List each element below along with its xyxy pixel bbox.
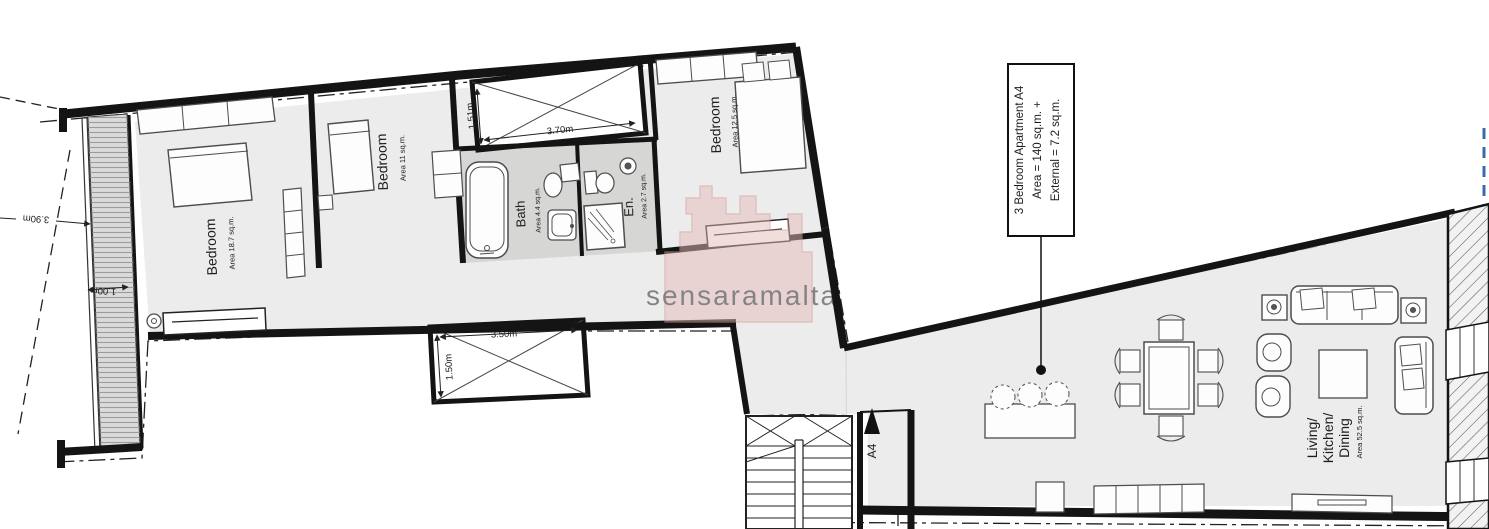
dresser-symbol-b2 [432,150,463,198]
bedroom3-name: Bedroom [706,96,724,153]
breakfast-bar-symbol [985,382,1075,438]
bedroom1-window [163,308,266,335]
dim-courtyard-width: 3.50m [491,328,518,340]
living-name-1: Living/ [1304,418,1320,459]
armchair-symbol-1 [1257,334,1291,371]
bedroom1-name: Bedroom [202,218,220,275]
floor-drain-symbol [147,314,161,328]
living-name-2: Kitchen/ [1320,413,1336,464]
dresser-symbol-b1 [283,188,305,278]
leader-dot [1036,365,1046,375]
floor-plan-canvas: sensaramalta 3 Bedroom Apartment A4 Area… [0,0,1489,529]
right-exterior-wall [1446,204,1489,529]
living-window-2 [1446,458,1489,504]
bedroom3-area: Area 12.5 sq.m. [729,94,740,147]
living-window-1 [1446,322,1489,380]
armchair-symbol-2 [1256,376,1290,417]
floor-plan-page: sensaramalta 3 Bedroom Apartment A4 Area… [0,0,1489,529]
shower-symbol [584,203,625,250]
sofa-top-symbol [1291,286,1398,324]
dim-terrace-width: 1.00m [89,284,116,296]
staircase [746,416,852,529]
coffee-table-symbol [1319,350,1367,398]
extractor-symbol [620,158,636,174]
bedroom2-area: Area 11 sq.m. [397,135,408,181]
side-table-lamp-left [1262,295,1287,320]
title-line-2: Area = 140 sq.m. + [1032,101,1044,199]
bed-symbol-b1 [168,143,252,207]
dim-courtyard-depth: 1.50m [443,353,455,380]
bedroom2-name: Bedroom [373,133,391,190]
title-line-1: 3 Bedroom Apartment A4 [1014,85,1026,214]
sofa-right-symbol [1395,337,1433,414]
side-table-lamp-right [1401,298,1426,323]
bedroom1-area: Area 18.7 sq.m. [226,216,237,269]
living-name-3: Dining [1336,418,1352,458]
living-area: Area 52.5 sq.m. [1355,406,1364,459]
ensuite-name: En. [621,197,637,217]
entrance-label: A4 [865,443,879,458]
bathtub-symbol [466,162,508,258]
bed-symbol-b3 [735,60,806,173]
watermark-text: sensaramalta [646,280,838,311]
bath-sink-symbol [548,210,576,240]
title-line-3: External = 7.2 sq.m. [1050,99,1062,202]
bath-name: Bath [513,200,529,227]
dim-terrace-length: 3.90m [22,212,49,224]
